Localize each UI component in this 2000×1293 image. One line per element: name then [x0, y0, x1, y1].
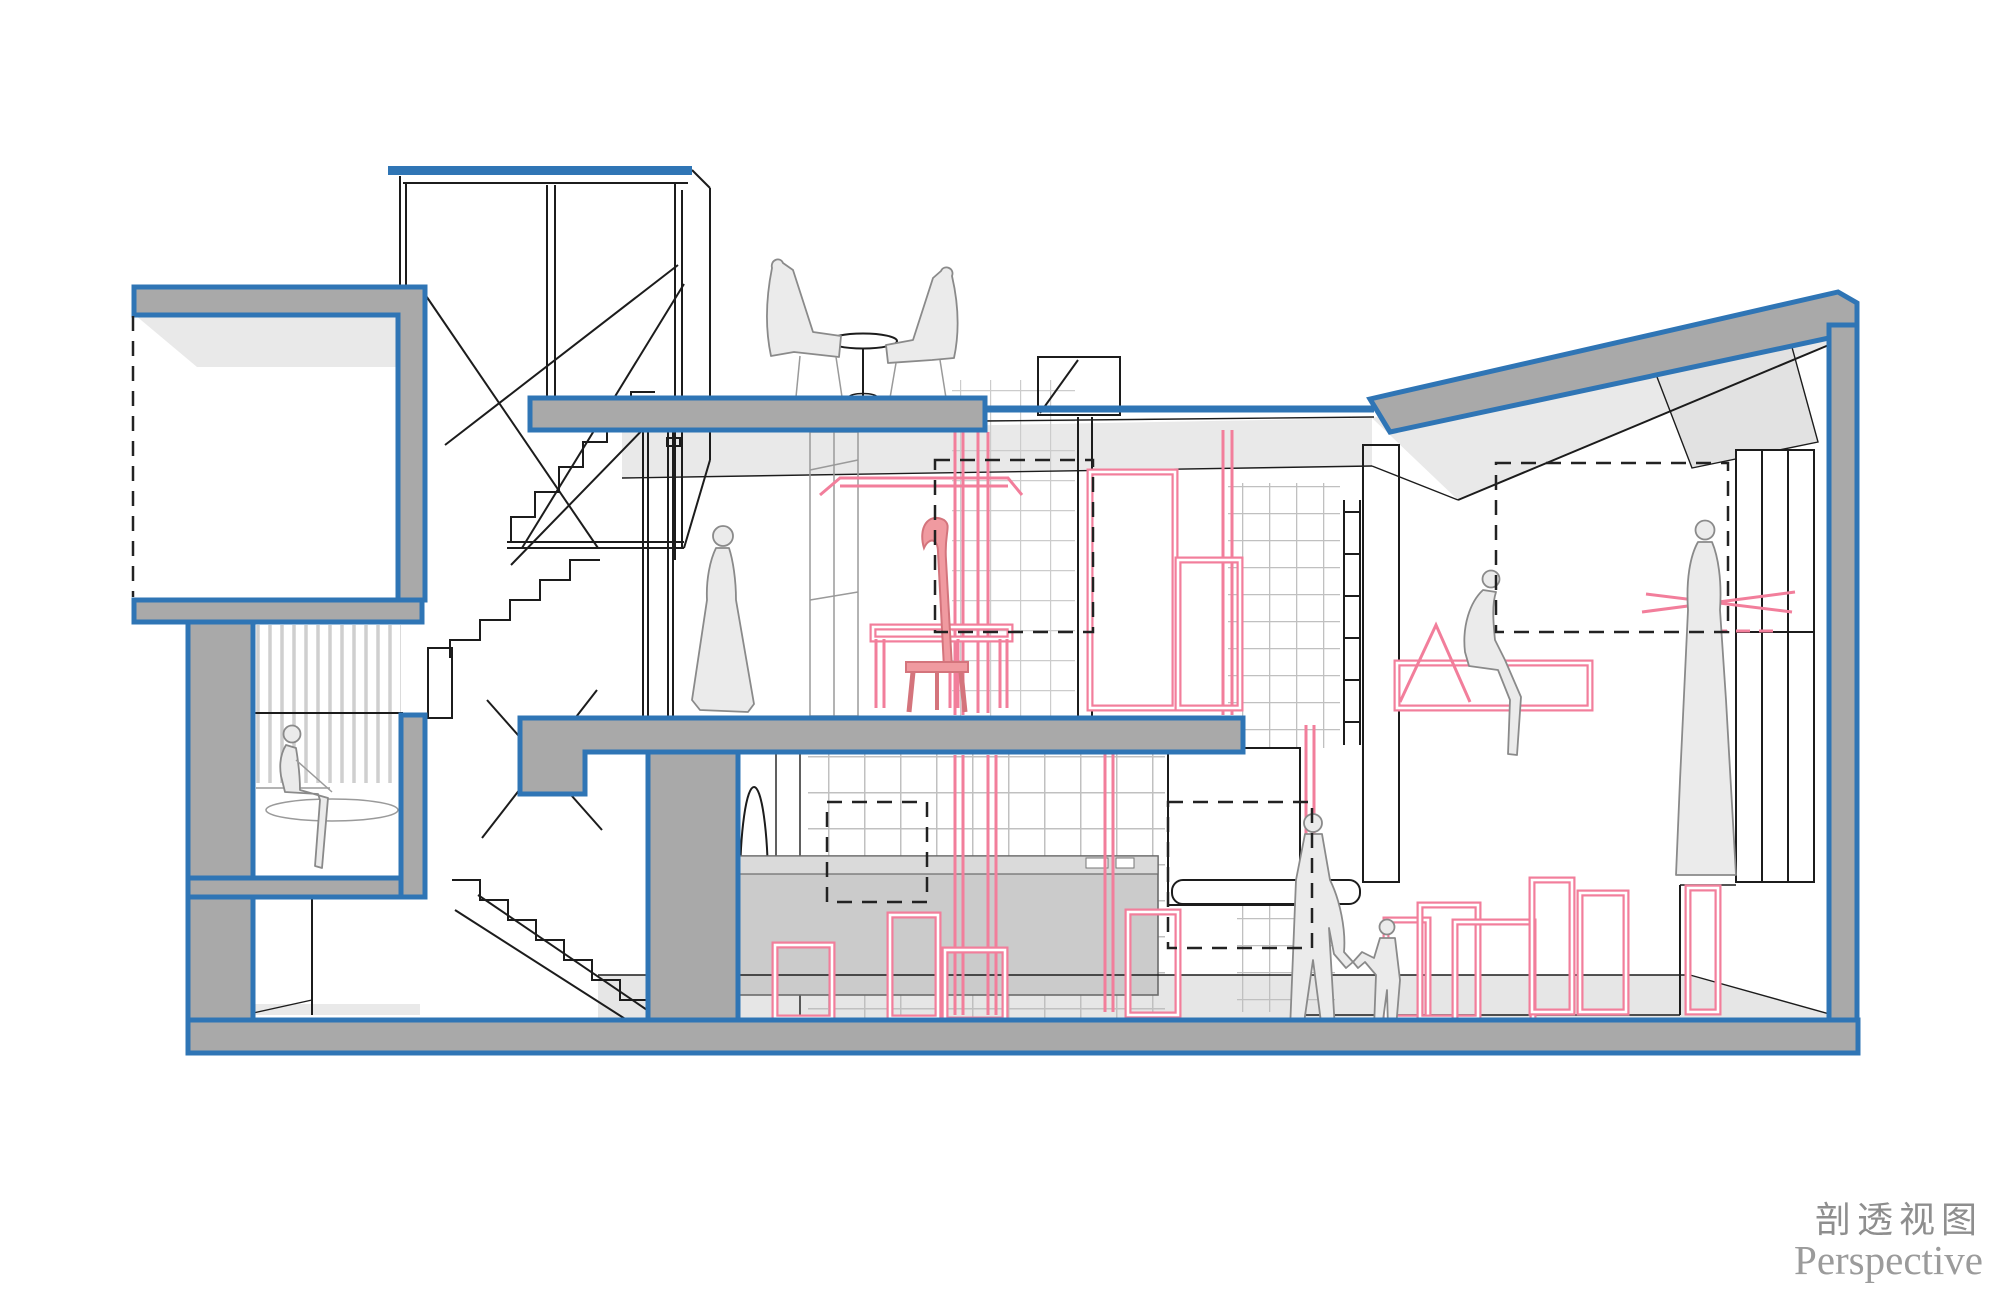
curtain-slats [256, 625, 401, 783]
caption-chinese: 剖透视图 [1815, 1200, 1983, 1240]
left-mid-slab [188, 878, 425, 897]
kitchen-island [700, 856, 1158, 995]
left-room-right-wall [401, 715, 425, 897]
caption-english: Perspective [1794, 1237, 1983, 1283]
tower-roof-edge [388, 166, 692, 175]
caption-block: 剖透视图 Perspective [1794, 1200, 1983, 1283]
center-lightwell-grid [952, 380, 1075, 748]
ground-slab [188, 1020, 1858, 1053]
upper-right-glassblock-grid [1228, 483, 1340, 748]
right-wall [1829, 325, 1857, 1022]
figure-right-woman [1676, 521, 1736, 876]
upper-wardrobe-frames [1090, 472, 1240, 708]
loft-ladder [1344, 500, 1360, 745]
room-a-ceiling-plane [135, 315, 398, 367]
figure-terrace-left [767, 259, 842, 397]
bed-niche [1168, 748, 1300, 905]
section-perspective-drawing: 剖透视图 Perspective [0, 0, 2000, 1293]
round-table [266, 799, 398, 821]
ground-left-wall [648, 752, 738, 1022]
left-upper-slab [134, 600, 422, 622]
basement-floor-plane [253, 1004, 420, 1015]
right-window [1736, 450, 1814, 882]
figure-upper-woman [692, 526, 754, 712]
left-wall [188, 622, 253, 1022]
drawing-sheet: 剖透视图 Perspective [0, 0, 2000, 1293]
terrace-slab [530, 398, 985, 430]
figure-terrace-right [886, 267, 958, 398]
